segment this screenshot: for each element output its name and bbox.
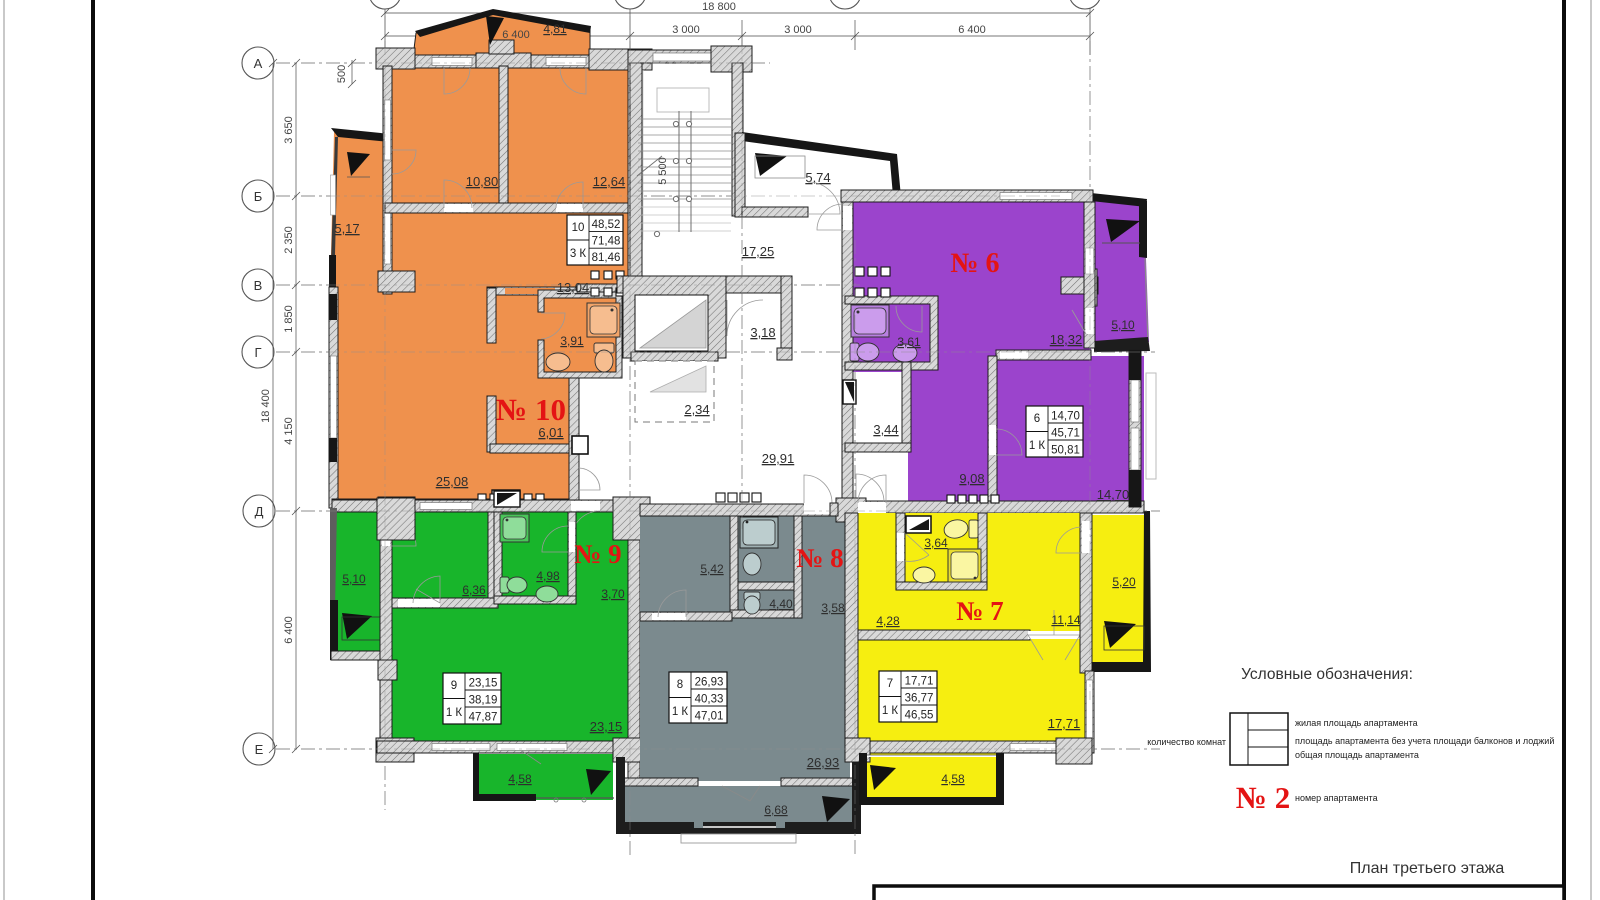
svg-text:48,52: 48,52 <box>592 219 621 231</box>
svg-text:47,87: 47,87 <box>469 712 498 724</box>
svg-text:Д: Д <box>255 504 264 519</box>
svg-text:25,08: 25,08 <box>436 474 469 489</box>
svg-text:81,46: 81,46 <box>592 252 621 264</box>
svg-text:3,64: 3,64 <box>924 536 948 550</box>
svg-text:№ 7: № 7 <box>956 596 1003 626</box>
svg-text:10,80: 10,80 <box>466 174 499 189</box>
svg-text:11,14: 11,14 <box>1051 613 1080 627</box>
svg-text:6: 6 <box>1034 413 1040 425</box>
svg-text:1 К: 1 К <box>882 705 899 717</box>
svg-text:4,98: 4,98 <box>536 569 560 583</box>
svg-text:4,81: 4,81 <box>543 22 567 36</box>
svg-text:14,70: 14,70 <box>1051 411 1080 423</box>
svg-text:6,68: 6,68 <box>764 803 788 817</box>
svg-text:Г: Г <box>254 345 261 360</box>
svg-text:6 400: 6 400 <box>502 29 530 41</box>
svg-text:3,18: 3,18 <box>750 325 775 340</box>
svg-text:А: А <box>254 56 263 71</box>
svg-text:38,19: 38,19 <box>469 695 498 707</box>
svg-text:45,71: 45,71 <box>1051 428 1080 440</box>
svg-text:1 850: 1 850 <box>283 305 295 333</box>
svg-text:4 150: 4 150 <box>283 417 295 445</box>
svg-text:500: 500 <box>336 65 348 83</box>
svg-text:Е: Е <box>255 742 264 757</box>
svg-text:Б: Б <box>254 189 263 204</box>
svg-text:№ 8: № 8 <box>796 543 843 573</box>
svg-text:3 К: 3 К <box>570 248 587 260</box>
svg-text:6,36: 6,36 <box>462 583 486 597</box>
svg-text:4,58: 4,58 <box>508 772 532 786</box>
svg-text:6 400: 6 400 <box>958 24 986 36</box>
svg-text:23,15: 23,15 <box>590 719 623 734</box>
svg-text:Условные обозначения:: Условные обозначения: <box>1241 666 1413 683</box>
svg-text:29,91: 29,91 <box>762 451 795 466</box>
svg-text:№ 10: № 10 <box>496 392 566 427</box>
svg-text:4,40: 4,40 <box>769 597 793 611</box>
svg-text:4,28: 4,28 <box>876 614 900 628</box>
svg-text:6,01: 6,01 <box>538 425 563 440</box>
svg-text:№ 6: № 6 <box>950 248 999 279</box>
svg-text:3,70: 3,70 <box>601 587 625 601</box>
svg-text:18 800: 18 800 <box>702 1 736 13</box>
svg-text:5,42: 5,42 <box>700 562 724 576</box>
svg-text:В: В <box>254 278 263 293</box>
svg-text:3 000: 3 000 <box>784 24 812 36</box>
svg-text:5,20: 5,20 <box>1112 575 1136 589</box>
svg-text:17,71: 17,71 <box>905 676 934 688</box>
svg-text:40,33: 40,33 <box>695 694 724 706</box>
svg-text:26,93: 26,93 <box>807 755 840 770</box>
svg-text:3,44: 3,44 <box>873 422 898 437</box>
svg-text:5,10: 5,10 <box>1111 318 1135 332</box>
svg-text:36,77: 36,77 <box>905 693 934 705</box>
svg-text:18 400: 18 400 <box>260 389 272 423</box>
svg-text:17,71: 17,71 <box>1048 716 1081 731</box>
svg-text:1 К: 1 К <box>1029 440 1046 452</box>
svg-text:3,58: 3,58 <box>821 601 845 615</box>
svg-text:6 400: 6 400 <box>283 616 295 644</box>
svg-text:7: 7 <box>887 678 893 690</box>
svg-text:71,48: 71,48 <box>592 236 621 248</box>
svg-text:47,01: 47,01 <box>695 711 724 723</box>
svg-text:3,61: 3,61 <box>897 335 921 349</box>
svg-text:10: 10 <box>572 222 585 234</box>
svg-text:12,64: 12,64 <box>593 174 626 189</box>
svg-text:1 К: 1 К <box>672 706 689 718</box>
svg-text:5,74: 5,74 <box>805 170 830 185</box>
svg-text:План третьего этажа: План третьего этажа <box>1350 860 1505 877</box>
svg-text:18,32: 18,32 <box>1050 332 1083 347</box>
svg-text:50,81: 50,81 <box>1051 445 1080 457</box>
svg-text:общая площадь апартамента: общая площадь апартамента <box>1295 750 1419 760</box>
svg-text:8: 8 <box>677 679 683 691</box>
svg-text:4,58: 4,58 <box>941 772 965 786</box>
svg-text:площадь апартамента без учета: площадь апартамента без учета площади ба… <box>1295 736 1554 746</box>
svg-text:№ 9: № 9 <box>574 539 621 569</box>
svg-text:жилая площадь апартамента: жилая площадь апартамента <box>1295 718 1418 728</box>
svg-text:3,91: 3,91 <box>560 334 584 348</box>
svg-text:5 500: 5 500 <box>657 157 669 185</box>
svg-text:3 000: 3 000 <box>672 24 700 36</box>
svg-text:3 650: 3 650 <box>283 116 295 144</box>
svg-text:26,93: 26,93 <box>695 677 724 689</box>
svg-text:23,15: 23,15 <box>469 678 498 690</box>
svg-text:14,70: 14,70 <box>1097 487 1130 502</box>
svg-text:46,55: 46,55 <box>905 710 934 722</box>
svg-text:5,10: 5,10 <box>342 572 366 586</box>
svg-text:17,25: 17,25 <box>742 244 775 259</box>
svg-text:13,04: 13,04 <box>557 280 590 295</box>
svg-text:количество комнат: количество комнат <box>1147 737 1226 747</box>
svg-text:9,08: 9,08 <box>959 471 984 486</box>
svg-text:1 К: 1 К <box>446 707 463 719</box>
svg-text:№ 2: № 2 <box>1236 780 1290 815</box>
svg-text:2,34: 2,34 <box>684 402 709 417</box>
svg-text:5,17: 5,17 <box>334 221 359 236</box>
svg-text:9: 9 <box>451 680 457 692</box>
svg-text:2 350: 2 350 <box>283 226 295 254</box>
svg-text:номер апартамента: номер апартамента <box>1295 793 1378 803</box>
